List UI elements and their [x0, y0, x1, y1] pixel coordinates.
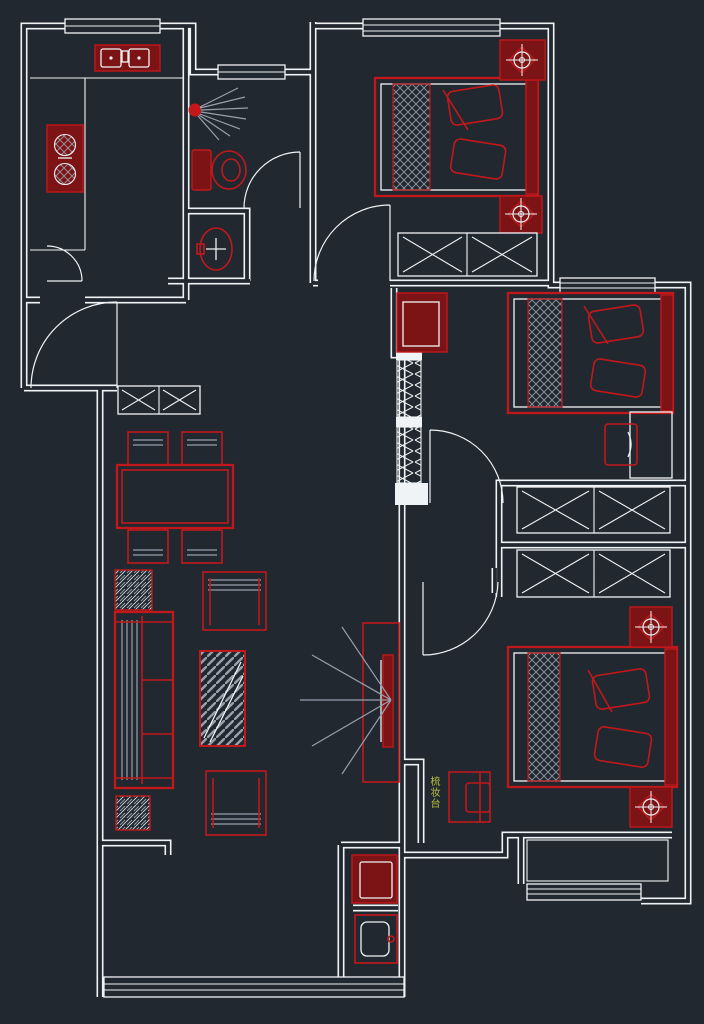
bay-window: [527, 840, 668, 900]
laundry-sink: [355, 915, 397, 963]
toilet: [192, 150, 246, 190]
bedroom1-window: [363, 19, 500, 36]
washing-machine: [352, 855, 397, 903]
dressing-table: [449, 772, 490, 822]
bedroom2-door: [430, 430, 503, 503]
kitchen: [47, 45, 160, 192]
bedroom-2: [397, 293, 673, 533]
shoe-cabinet: [118, 386, 200, 414]
floor-plan-drawing: [0, 0, 704, 1024]
kitchen-sink: [95, 45, 160, 71]
kitchen-window: [65, 19, 160, 33]
armchair: [206, 771, 266, 835]
nightstand-lamp: [500, 196, 542, 233]
bed-1: [375, 78, 538, 196]
bathroom: [189, 88, 248, 270]
bedroom-1: [375, 40, 545, 276]
dressing-desk: [605, 412, 672, 478]
dining-chair: [128, 530, 168, 563]
balcony-window: [104, 977, 404, 997]
plant: [115, 570, 152, 610]
plant: [116, 796, 150, 830]
bathroom-window: [218, 65, 285, 79]
nightstand-lamp: [500, 40, 545, 80]
bedroom3-door: [423, 582, 498, 655]
entry: [118, 386, 200, 414]
stove: [47, 125, 83, 192]
wash-basin: [197, 228, 232, 270]
living-dining-room: [115, 432, 399, 835]
bedroom-3: [449, 550, 677, 827]
kitchen-door: [47, 246, 82, 281]
nightstand-lamp: [630, 607, 672, 647]
dining-chair: [128, 432, 168, 465]
duct-shaft: [395, 352, 428, 505]
coffee-table: [200, 651, 245, 746]
dining-chair: [182, 432, 222, 465]
armchair: [203, 572, 266, 630]
dining-table: [117, 465, 233, 528]
bed-3: [508, 647, 677, 787]
entry-door: [31, 302, 117, 388]
nightstand-lamp: [630, 787, 672, 827]
tv-cabinet: [300, 623, 399, 782]
cabinet: [397, 293, 447, 352]
wardrobe: [517, 487, 670, 533]
bathroom-door: [244, 152, 300, 208]
dressing-table-label: 梳妆台: [426, 776, 440, 822]
bedroom2-window: [560, 278, 655, 293]
shower-head: [189, 88, 248, 140]
floor-plan-canvas: 梳妆台: [0, 0, 704, 1024]
wardrobe: [517, 550, 670, 597]
dining-chair: [182, 530, 222, 563]
bed-2: [508, 293, 673, 413]
bedroom1-door: [314, 205, 390, 281]
sofa: [115, 612, 173, 788]
wardrobe: [398, 233, 537, 276]
